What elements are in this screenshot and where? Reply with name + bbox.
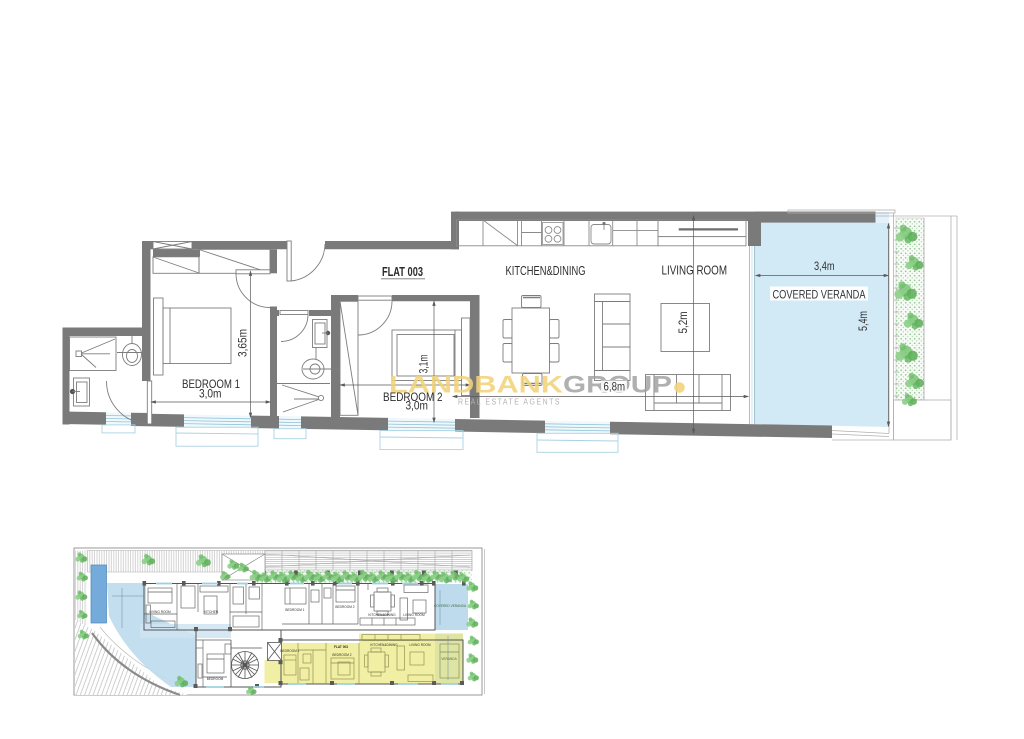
svg-text:LIVING ROOM: LIVING ROOM: [662, 263, 728, 278]
svg-text:FLAT 003: FLAT 003: [382, 264, 423, 279]
svg-text:BEDROOM: BEDROOM: [207, 677, 224, 681]
svg-text:LIVING ROOM: LIVING ROOM: [409, 643, 431, 647]
svg-text:KITCHEN&DINING: KITCHEN&DINING: [370, 643, 398, 647]
svg-text:BEDROOM 1: BEDROOM 1: [280, 649, 299, 653]
svg-text:5,4m: 5,4m: [856, 311, 870, 331]
svg-text:3,1m: 3,1m: [417, 355, 431, 374]
svg-text:3,65m: 3,65m: [236, 329, 250, 357]
svg-text:LIVING ROOM: LIVING ROOM: [149, 610, 171, 614]
svg-text:BEDROOM 2: BEDROOM 2: [332, 653, 351, 657]
svg-text:BEDROOM 2: BEDROOM 2: [335, 605, 354, 609]
svg-text:KITCHEN&DINING: KITCHEN&DINING: [368, 613, 396, 617]
svg-text:KITCHEN: KITCHEN: [204, 610, 219, 614]
svg-text:3,4m: 3,4m: [814, 259, 835, 273]
svg-text:3,0m: 3,0m: [199, 387, 222, 401]
svg-text:COVERED VERANDA: COVERED VERANDA: [773, 288, 867, 302]
svg-text:KITCHEN&DINING: KITCHEN&DINING: [506, 263, 586, 278]
svg-text:BEDROOM 1: BEDROOM 1: [285, 608, 304, 612]
svg-text:FLAT 003: FLAT 003: [334, 645, 348, 649]
svg-text:3,0m: 3,0m: [406, 399, 429, 413]
svg-text:6,8m: 6,8m: [604, 380, 626, 394]
svg-text:VERANDA: VERANDA: [441, 657, 457, 661]
svg-text:5,2m: 5,2m: [676, 312, 690, 334]
svg-text:REAL ESTATE AGENTS: REAL ESTATE AGENTS: [458, 398, 561, 407]
svg-text:COVERED VERANDA: COVERED VERANDA: [434, 604, 467, 608]
svg-text:LIVING ROOM: LIVING ROOM: [403, 613, 425, 617]
